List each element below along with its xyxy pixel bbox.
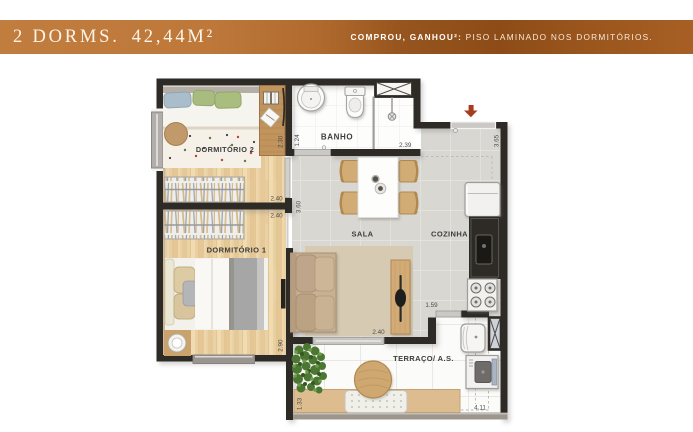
svg-text:3.65: 3.65: [494, 134, 501, 147]
svg-text:3.60: 3.60: [296, 200, 303, 213]
svg-text:1.59: 1.59: [425, 302, 438, 309]
svg-text:2.39: 2.39: [399, 142, 412, 149]
svg-text:2.90: 2.90: [277, 339, 284, 352]
svg-text:TERRAÇO/ A.S.: TERRAÇO/ A.S.: [393, 354, 454, 363]
svg-text:BANHO: BANHO: [321, 133, 353, 142]
svg-text:COZINHA: COZINHA: [431, 230, 468, 239]
svg-text:1.24: 1.24: [294, 134, 301, 147]
svg-text:DORMITÓRIO 1: DORMITÓRIO 1: [207, 246, 267, 255]
svg-text:SALA: SALA: [351, 230, 373, 239]
svg-text:2.40: 2.40: [270, 196, 283, 203]
svg-text:2.30: 2.30: [277, 135, 284, 148]
svg-text:1.33: 1.33: [297, 397, 304, 410]
svg-text:DORMITÓRIO 2: DORMITÓRIO 2: [196, 145, 254, 154]
svg-text:2.40: 2.40: [270, 213, 283, 220]
svg-text:4.11: 4.11: [474, 405, 486, 412]
svg-text:2.40: 2.40: [372, 329, 385, 336]
